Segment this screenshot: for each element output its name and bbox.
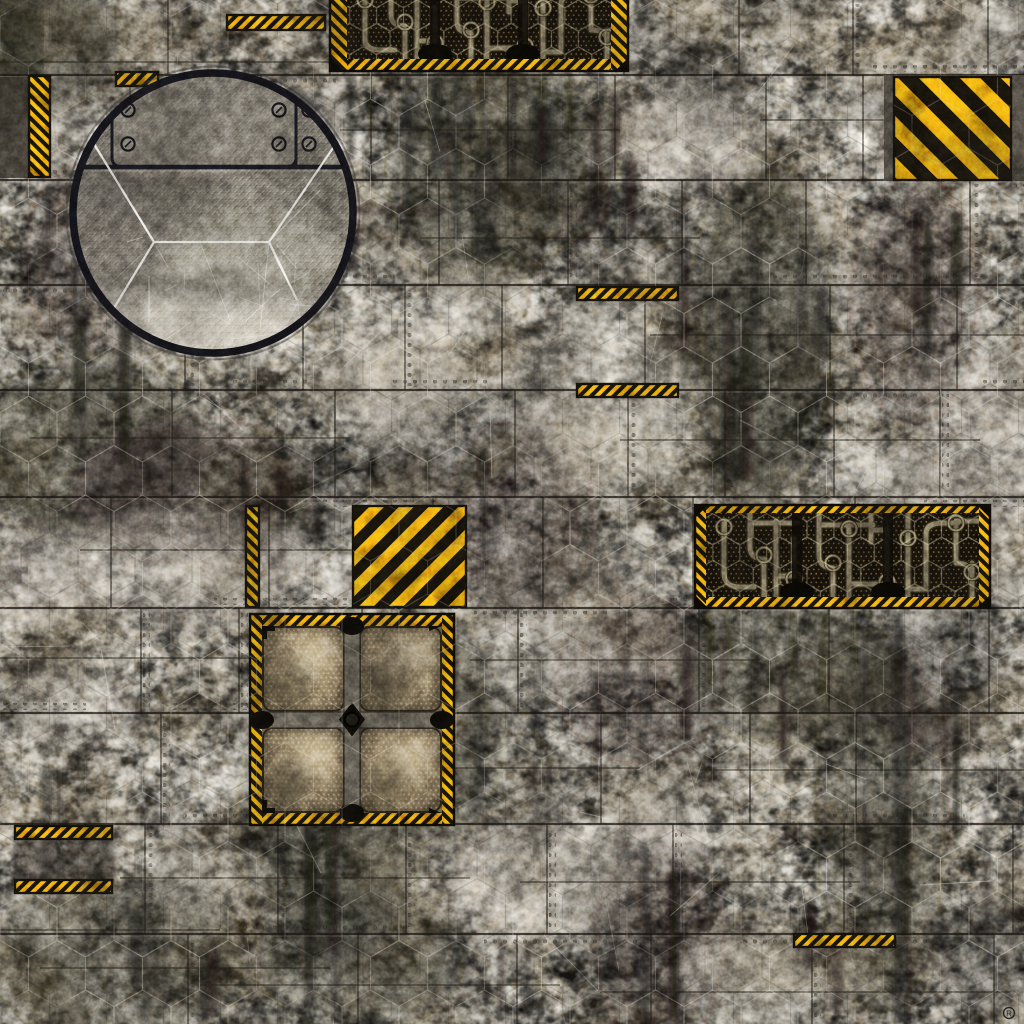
svg-text:R: R bbox=[1006, 1010, 1012, 1019]
